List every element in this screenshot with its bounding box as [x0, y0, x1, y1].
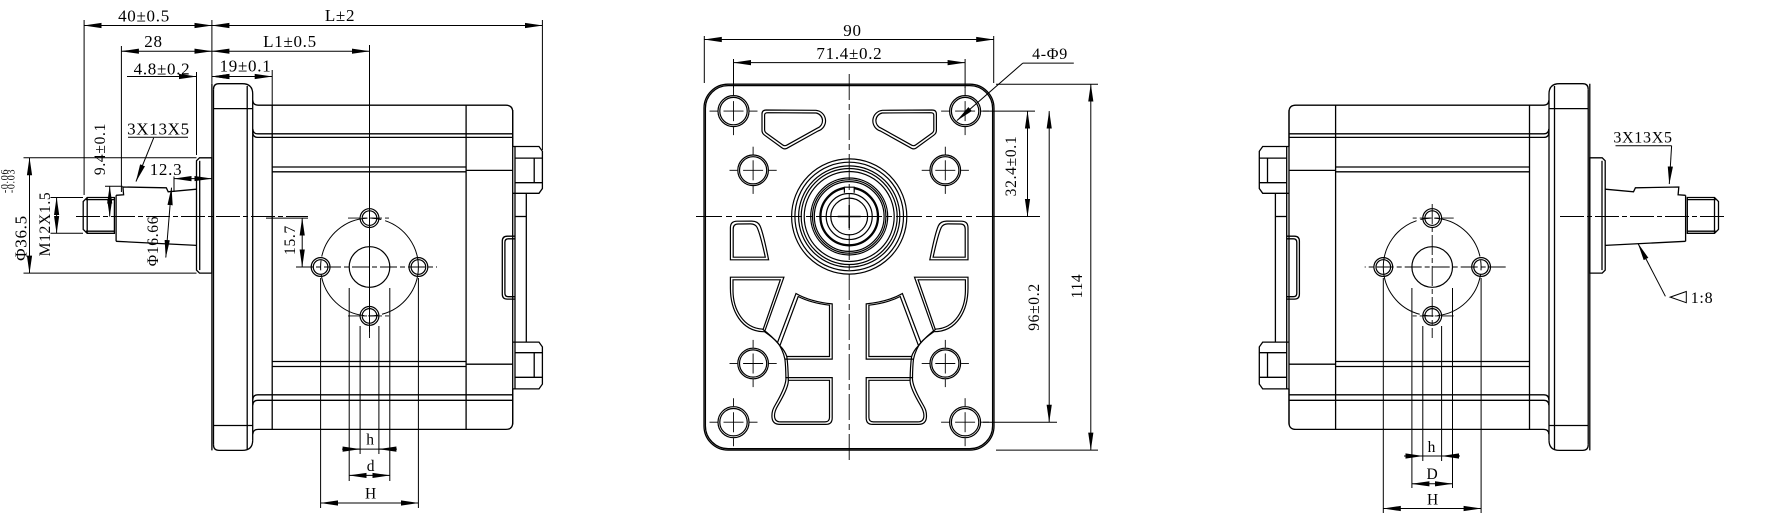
svg-text:1:8: 1:8 [1691, 290, 1714, 307]
svg-text:H: H [1427, 492, 1439, 509]
svg-text:96±0.2: 96±0.2 [1026, 283, 1043, 331]
svg-text:h: h [1428, 439, 1436, 456]
svg-text:Φ16.66: Φ16.66 [145, 216, 162, 266]
svg-text:28: 28 [144, 32, 162, 51]
svg-text:12.3: 12.3 [150, 160, 183, 179]
svg-text:19±0.1: 19±0.1 [220, 57, 272, 76]
svg-text:9.4±0.1: 9.4±0.1 [92, 123, 109, 175]
svg-text:L±2: L±2 [325, 6, 355, 25]
svg-text:-0.06: -0.06 [0, 169, 11, 193]
svg-text:H: H [365, 486, 377, 503]
svg-text:71.4±0.2: 71.4±0.2 [816, 44, 882, 63]
svg-text:M12X1.5: M12X1.5 [37, 192, 54, 257]
svg-text:32.4±0.1: 32.4±0.1 [1003, 136, 1020, 197]
svg-text:4-Φ9: 4-Φ9 [1032, 46, 1068, 63]
svg-text:3X13X5: 3X13X5 [127, 120, 190, 139]
svg-text:d: d [367, 458, 375, 475]
svg-text:D: D [1426, 466, 1438, 483]
svg-text:114: 114 [1069, 274, 1086, 299]
svg-text:15.7: 15.7 [282, 225, 299, 255]
svg-text:L1±0.5: L1±0.5 [263, 32, 317, 51]
svg-text:h: h [366, 432, 374, 449]
svg-text:Φ36.5: Φ36.5 [12, 215, 31, 261]
svg-text:3X13X5: 3X13X5 [1613, 129, 1672, 146]
svg-text:4.8±0.2: 4.8±0.2 [134, 60, 191, 79]
svg-text:40±0.5: 40±0.5 [118, 7, 170, 26]
svg-text:90: 90 [843, 21, 861, 40]
